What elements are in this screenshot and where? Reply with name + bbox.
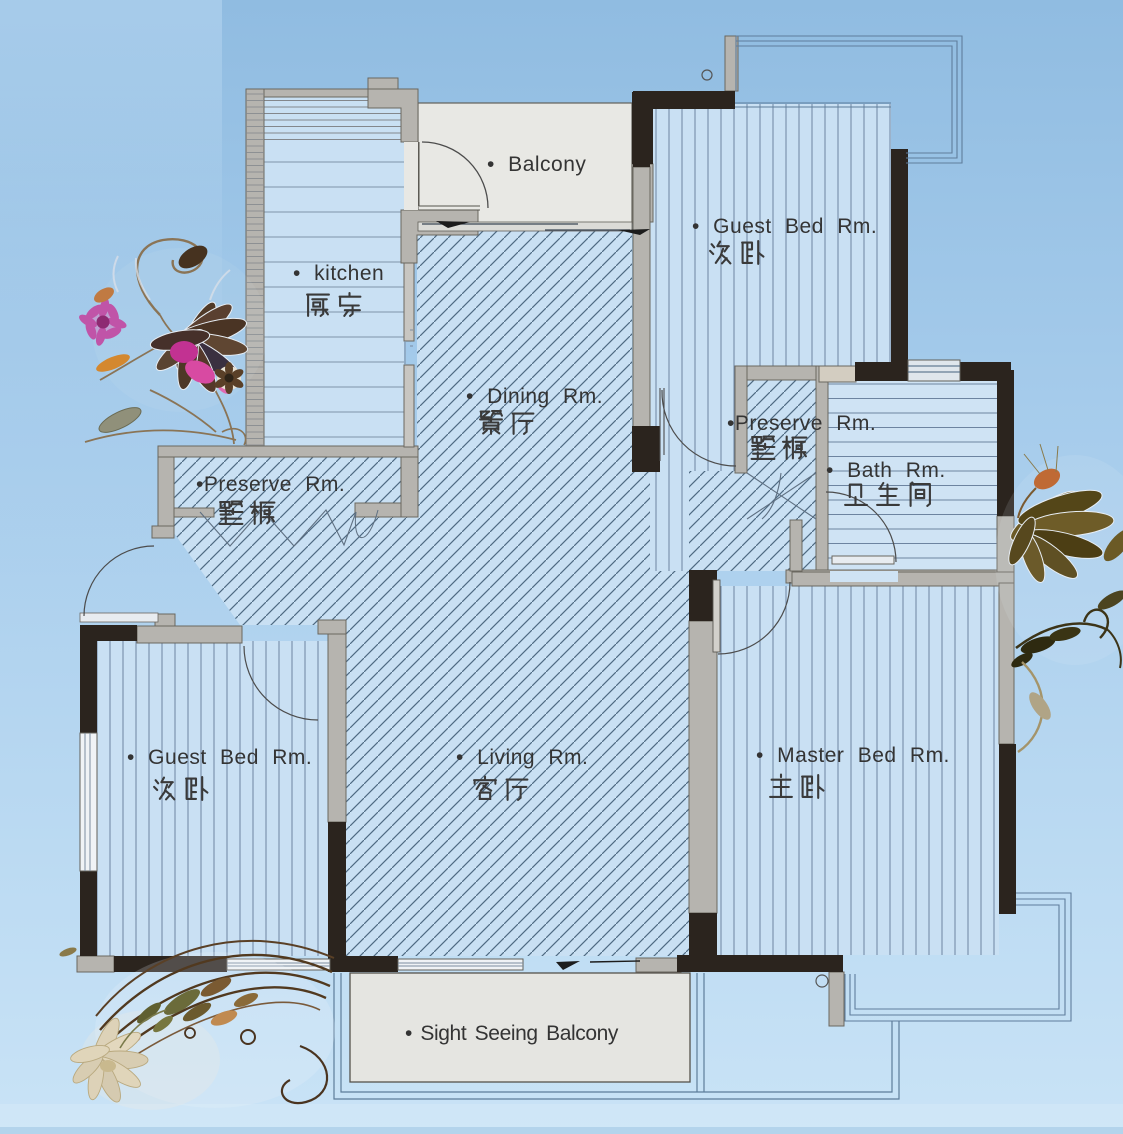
svg-text:• Bath Rm.: • Bath Rm. [826,459,946,482]
svg-text:• kitchen: • kitchen [293,262,384,285]
svg-text:• Master Bed Rm.: • Master Bed Rm. [756,744,950,767]
svg-text:• Guest Bed Rm.: • Guest Bed Rm. [127,746,312,769]
svg-text:• Balcony: • Balcony [487,153,586,176]
svg-text:• Living Rm.: • Living Rm. [456,746,588,769]
svg-text:•Preserve Rm.: •Preserve Rm. [727,412,876,435]
svg-text:• Guest Bed Rm.: • Guest Bed Rm. [692,215,877,238]
svg-text:• Sight Seeing Balcony: • Sight Seeing Balcony [405,1022,619,1045]
svg-text:•Preserve Rm.: •Preserve Rm. [196,473,345,496]
svg-text:• Dining Rm.: • Dining Rm. [466,385,603,408]
